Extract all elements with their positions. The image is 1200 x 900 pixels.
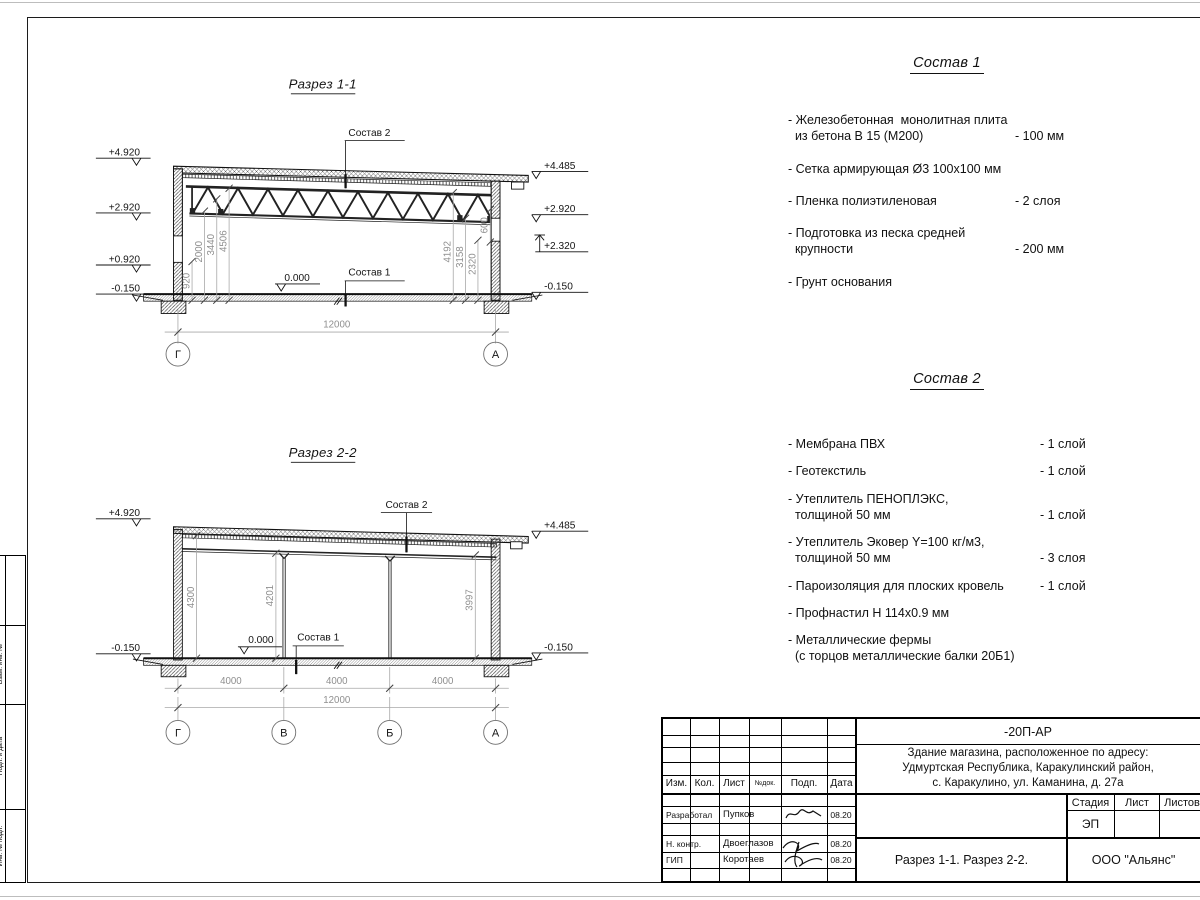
signature-scribble bbox=[777, 834, 827, 870]
dim-label: 2000 bbox=[194, 240, 205, 262]
axis-bubbles: Г А bbox=[166, 342, 507, 366]
roof-slab bbox=[174, 166, 529, 189]
sheets-label: Листов bbox=[1160, 797, 1200, 809]
layer-name: - Грунт основания bbox=[788, 274, 1015, 290]
section-1-title: Разрез 1-1 bbox=[289, 77, 357, 94]
side-stamp-label: Взам. инв. № bbox=[0, 629, 7, 699]
elevation-marks-left: +4.920 +2.920 +0.920 -0.150 bbox=[96, 148, 151, 302]
layer-name: - Пароизоляция для плоских кровель bbox=[788, 578, 1040, 594]
layer-name: - Сетка армирующая Ø3 100х100 мм bbox=[788, 161, 1015, 177]
sheet-label: Лист bbox=[1115, 797, 1159, 809]
truss bbox=[186, 186, 497, 224]
sign-role: ГИП bbox=[666, 855, 683, 865]
object-address-line: с. Каракулино, ул. Каманина, д. 27а bbox=[856, 777, 1200, 789]
sostav1-leader: Состав 1 bbox=[293, 633, 344, 675]
elevation-label: +2.920 bbox=[109, 202, 141, 213]
right-footing bbox=[484, 301, 509, 313]
left-wall bbox=[174, 529, 183, 660]
drawing-sheet: Разрез 1-1 bbox=[0, 0, 1200, 900]
dim-label: 4201 bbox=[265, 585, 276, 607]
sheet-top-edge bbox=[0, 2, 1200, 3]
list-item: - Подготовка из песка средней крупности-… bbox=[788, 225, 1118, 258]
dim-label: 2320 bbox=[467, 253, 478, 275]
section-1-drawing: Разрез 1-1 bbox=[80, 40, 680, 400]
sostav2-ref-label: Состав 2 bbox=[348, 128, 390, 139]
section-2-drawing: Разрез 2-2 bbox=[80, 420, 680, 780]
sign-name: Коротаев bbox=[723, 854, 764, 865]
list-item: - Геотекстиль- 1 слой bbox=[788, 463, 1128, 479]
interior-dims-right: 4192 3158 2320 600 bbox=[443, 189, 494, 304]
object-address-line: Удмуртская Республика, Каракулинский рай… bbox=[856, 762, 1200, 774]
dim-total-label: 12000 bbox=[323, 320, 351, 331]
stage-label: Стадия bbox=[1067, 797, 1114, 809]
elevation-label: +4.920 bbox=[109, 508, 141, 519]
list-item: - Утеплитель Эковер Y=100 кг/м3, толщино… bbox=[788, 534, 1128, 567]
sostav-1-list: - Железобетонная монолитная плита из бет… bbox=[788, 112, 1118, 306]
sostav1-ref-label: Состав 1 bbox=[348, 268, 390, 279]
company-name: ООО "Альянс" bbox=[1067, 853, 1200, 867]
sostav-2-title: Состав 2 bbox=[910, 371, 984, 390]
signature-scribble bbox=[782, 806, 826, 823]
dim-label: 3440 bbox=[206, 233, 217, 255]
layer-value: - 1 слой bbox=[1040, 507, 1128, 523]
section-2-title: Разрез 2-2 bbox=[289, 445, 358, 462]
elevation-marks-right: +4.485 +2.920 +2.320 -0.150 bbox=[532, 161, 588, 300]
sostav-2-header: Состав 2 bbox=[767, 370, 1127, 390]
dim-label: 920 bbox=[181, 272, 192, 289]
side-stamp-label: Подп. и дата bbox=[0, 721, 7, 791]
list-item: - Утеплитель ПЕНОПЛЭКС, толщиной 50 мм- … bbox=[788, 491, 1128, 524]
sostav-1-header: Состав 1 bbox=[767, 54, 1127, 74]
sign-name: Двоеглазов bbox=[723, 838, 774, 849]
sheet-bottom-edge bbox=[0, 896, 1200, 897]
list-item: - Мембрана ПВХ- 1 слой bbox=[788, 436, 1128, 452]
dim-label: 4300 bbox=[186, 586, 197, 608]
layer-value: - 2 слоя bbox=[1015, 193, 1118, 209]
layer-name: - Подготовка из песка средней крупности bbox=[788, 225, 1015, 258]
list-item: - Пленка полиэтиленовая- 2 слоя bbox=[788, 193, 1118, 209]
layer-name: - Утеплитель ПЕНОПЛЭКС, толщиной 50 мм bbox=[788, 491, 1040, 524]
elevation-label: -0.150 bbox=[544, 642, 573, 653]
bay-dim-label: 4000 bbox=[326, 676, 348, 687]
elevation-label: +2.320 bbox=[544, 241, 576, 252]
layer-name: - Железобетонная монолитная плита из бет… bbox=[788, 112, 1015, 145]
layer-name: - Пленка полиэтиленовая bbox=[788, 193, 1015, 209]
layer-value: - 1 слой bbox=[1040, 463, 1128, 479]
elevation-label: -0.150 bbox=[111, 643, 140, 654]
dim-total-label: 12000 bbox=[323, 695, 351, 706]
layer-value: - 3 слоя bbox=[1040, 550, 1128, 566]
zero-level-mark: 0.000 bbox=[238, 635, 282, 654]
axis-bubbles: Г В Б А bbox=[166, 720, 507, 744]
sostav2-ref-label: Состав 2 bbox=[385, 500, 427, 511]
zero-level-mark: 0.000 bbox=[275, 273, 320, 291]
sostav-1-title: Состав 1 bbox=[910, 55, 984, 74]
axis-label: Г bbox=[175, 349, 181, 361]
layer-name: - Металлические фермы (с торцов металлич… bbox=[788, 632, 1040, 665]
drawing-title: Разрез 1-1. Разрез 2-2. bbox=[856, 853, 1067, 867]
title-block: Изм. Кол. Лист №док. Подп. Дата Разработ… bbox=[661, 717, 1200, 883]
elevation-label: +2.920 bbox=[544, 204, 576, 215]
layer-value: - 100 мм bbox=[1015, 128, 1118, 144]
axis-label: Б bbox=[386, 727, 393, 739]
dim-label: 4192 bbox=[443, 241, 454, 263]
elevation-label: +4.485 bbox=[544, 161, 576, 172]
right-footing bbox=[484, 665, 509, 676]
interior-dims-left: 920 2000 3440 4506 bbox=[181, 185, 232, 304]
list-item: - Металлические фермы (с торцов металлич… bbox=[788, 632, 1128, 665]
bay-dim-label: 4000 bbox=[432, 676, 454, 687]
document-code: -20П-АР bbox=[856, 725, 1200, 739]
col-kol: Кол. bbox=[690, 778, 719, 789]
layer-value: - 1 слой bbox=[1040, 578, 1128, 594]
layer-name: - Геотекстиль bbox=[788, 463, 1040, 479]
section-1-title-text: Разрез 1-1 bbox=[289, 77, 357, 92]
axis-label: А bbox=[492, 349, 500, 361]
elevation-label: +4.920 bbox=[109, 148, 141, 159]
elevation-marks-left: +4.920 -0.150 bbox=[96, 508, 151, 661]
stage-value: ЭП bbox=[1067, 817, 1114, 831]
sign-date: 08.20 bbox=[826, 839, 856, 849]
sostav-2-list: - Мембрана ПВХ- 1 слой - Геотекстиль- 1 … bbox=[788, 436, 1128, 676]
side-stamp: Взам. инв. № Подп. и дата Инв. № подл. bbox=[0, 555, 26, 883]
col-data: Дата bbox=[827, 778, 856, 789]
bottom-dimensions: 4000 4000 4000 12000 bbox=[165, 667, 509, 720]
axis-label: А bbox=[492, 727, 500, 739]
col-list: Лист bbox=[719, 778, 749, 789]
list-item: - Пароизоляция для плоских кровель- 1 сл… bbox=[788, 578, 1128, 594]
layer-name: - Профнастил Н 114х0.9 мм bbox=[788, 605, 1040, 621]
sign-role: Н. контр. bbox=[666, 839, 701, 849]
zero-level-label: 0.000 bbox=[284, 273, 310, 284]
col-podp: Подп. bbox=[781, 778, 827, 789]
layer-name: - Утеплитель Эковер Y=100 кг/м3, толщино… bbox=[788, 534, 1040, 567]
axis-label: В bbox=[280, 727, 287, 739]
bay-dim-label: 4000 bbox=[220, 676, 242, 687]
dim-label: 3158 bbox=[455, 246, 466, 268]
side-stamp-label: Инв. № подл. bbox=[0, 811, 7, 881]
layer-value: - 200 мм bbox=[1015, 241, 1118, 257]
right-wall bbox=[491, 539, 500, 660]
sign-date: 08.20 bbox=[826, 810, 856, 820]
list-item: - Профнастил Н 114х0.9 мм bbox=[788, 605, 1128, 621]
bottom-dimension: 12000 bbox=[165, 310, 509, 344]
sign-name: Пупков bbox=[723, 809, 754, 820]
dim-label: 3997 bbox=[465, 589, 476, 611]
left-footing bbox=[161, 665, 186, 676]
dim-label: 600 bbox=[480, 217, 491, 234]
object-address-line: Здание магазина, расположенное по адресу… bbox=[856, 747, 1200, 759]
axis-label: Г bbox=[175, 727, 181, 739]
list-item: - Железобетонная монолитная плита из бет… bbox=[788, 112, 1118, 145]
section-2-title-text: Разрез 2-2 bbox=[289, 445, 358, 460]
sign-date: 08.20 bbox=[826, 855, 856, 865]
layer-value: - 1 слой bbox=[1040, 436, 1128, 452]
zero-level-label: 0.000 bbox=[248, 635, 274, 646]
elevation-label: -0.150 bbox=[111, 283, 140, 294]
elevation-marks-right: +4.485 -0.150 bbox=[532, 521, 588, 660]
dim-label: 4506 bbox=[218, 230, 229, 252]
left-footing bbox=[161, 301, 186, 313]
right-wall bbox=[491, 181, 500, 300]
sostav1-ref-label: Состав 1 bbox=[297, 633, 339, 644]
elevation-label: +0.920 bbox=[109, 254, 141, 265]
col-ndok: №док. bbox=[749, 780, 781, 787]
list-item: - Грунт основания bbox=[788, 274, 1118, 290]
layer-name: - Мембрана ПВХ bbox=[788, 436, 1040, 452]
elevation-label: +4.485 bbox=[544, 521, 576, 532]
elevation-label: -0.150 bbox=[544, 282, 573, 293]
col-izm: Изм. bbox=[663, 778, 690, 789]
list-item: - Сетка армирующая Ø3 100х100 мм bbox=[788, 161, 1118, 177]
sign-role: Разработал bbox=[666, 810, 712, 820]
